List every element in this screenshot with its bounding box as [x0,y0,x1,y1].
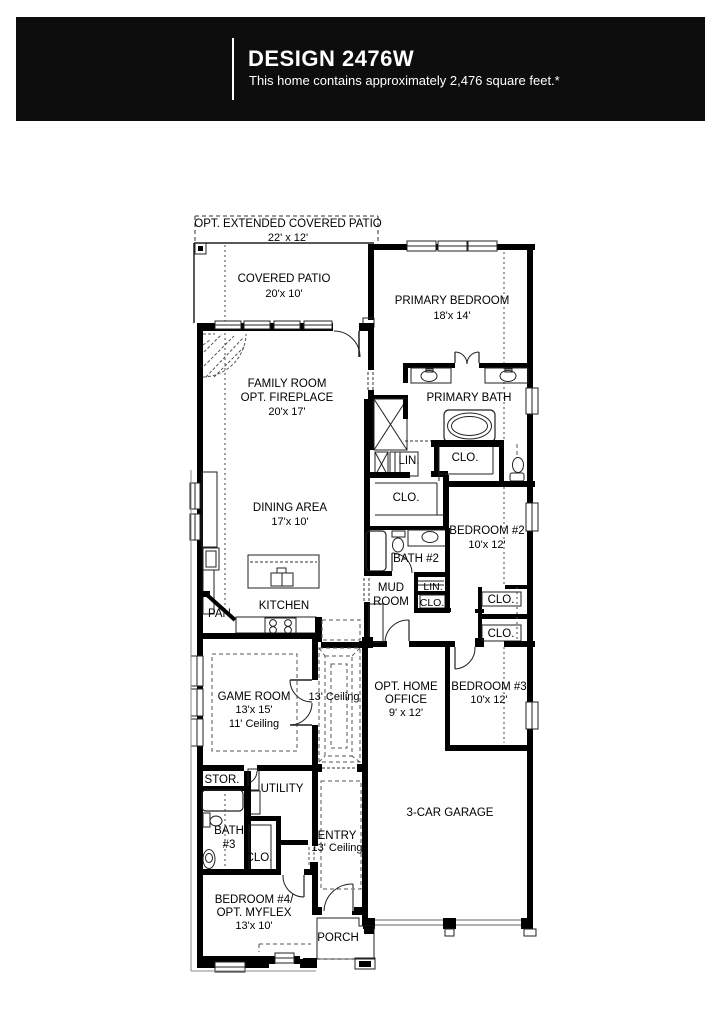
svg-text:CLO.: CLO. [420,597,445,609]
svg-text:STOR.: STOR. [205,774,240,786]
svg-text:OPT. MYFLEX: OPT. MYFLEX [217,907,292,919]
svg-text:LIN.: LIN. [423,581,442,593]
svg-text:11' Ceiling: 11' Ceiling [229,718,279,730]
svg-text:COVERED PATIO: COVERED PATIO [238,273,331,285]
svg-text:OPT. HOME: OPT. HOME [374,681,438,693]
svg-text:PAN.: PAN. [208,608,234,620]
svg-text:OPT. FIREPLACE: OPT. FIREPLACE [241,392,334,404]
svg-text:CLO.: CLO. [246,852,273,864]
svg-text:CLO.: CLO. [488,594,515,606]
svg-text:3-CAR GARAGE: 3-CAR GARAGE [407,807,494,819]
svg-text:PRIMARY BEDROOM: PRIMARY BEDROOM [395,295,510,307]
svg-text:UTILITY: UTILITY [261,783,304,795]
svg-text:BATH #2: BATH #2 [393,553,439,565]
svg-text:KITCHEN: KITCHEN [259,600,309,612]
svg-text:PORCH: PORCH [317,932,359,944]
svg-text:13'x 10': 13'x 10' [235,920,272,932]
svg-text:13'x 15': 13'x 15' [235,704,272,716]
svg-text:OPT. EXTENDED COVERED PATIO: OPT. EXTENDED COVERED PATIO [194,218,381,230]
svg-text:ROOM: ROOM [373,596,409,608]
svg-text:#3: #3 [223,839,236,851]
svg-text:13' Ceiling: 13' Ceiling [311,842,362,854]
svg-text:MUD: MUD [378,582,404,594]
svg-text:CLO.: CLO. [488,628,515,640]
svg-text:ENTRY: ENTRY [318,830,357,842]
svg-text:CLO.: CLO. [393,492,420,504]
svg-text:LIN.: LIN. [398,455,419,467]
svg-text:BATH: BATH [214,825,244,837]
svg-text:20'x 17': 20'x 17' [268,406,305,418]
svg-text:PRIMARY BATH: PRIMARY BATH [427,392,512,404]
svg-text:9' x 12': 9' x 12' [389,707,423,719]
svg-text:18'x 14': 18'x 14' [433,310,470,322]
svg-text:BEDROOM #4/: BEDROOM #4/ [215,894,294,906]
svg-text:GAME ROOM: GAME ROOM [218,691,291,703]
svg-text:10'x 12': 10'x 12' [470,694,507,706]
svg-text:20'x 10': 20'x 10' [265,288,302,300]
svg-text:BEDROOM #3: BEDROOM #3 [451,681,526,693]
svg-text:22' x 12': 22' x 12' [268,232,308,244]
svg-text:FAMILY ROOM: FAMILY ROOM [248,378,327,390]
svg-text:CLO.: CLO. [452,452,479,464]
svg-text:DINING AREA: DINING AREA [253,502,327,514]
svg-text:OFFICE: OFFICE [385,694,427,706]
svg-text:10'x 12': 10'x 12' [468,539,505,551]
svg-text:BEDROOM #2: BEDROOM #2 [449,525,524,537]
svg-text:13' Ceiling: 13' Ceiling [308,691,359,703]
svg-text:17'x 10': 17'x 10' [271,516,308,528]
